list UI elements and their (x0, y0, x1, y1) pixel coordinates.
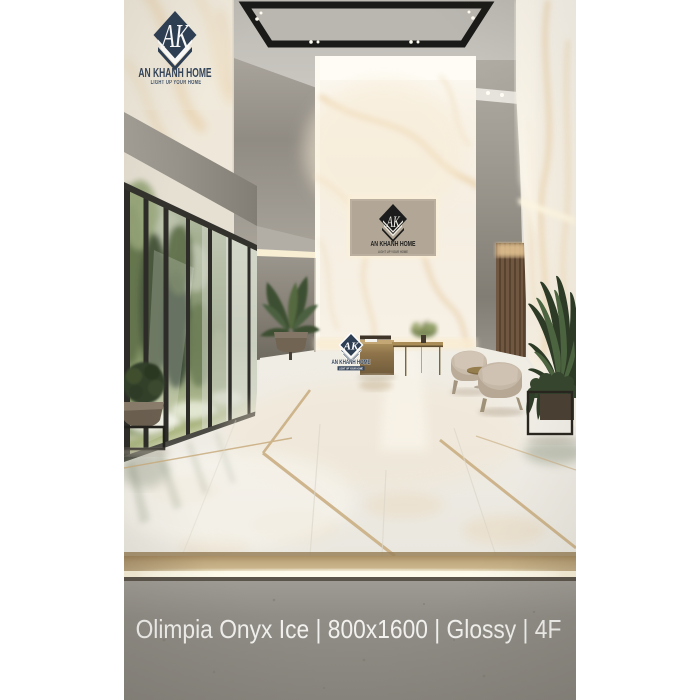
svg-text:LIGHT UP YOUR HOME: LIGHT UP YOUR HOME (378, 250, 409, 254)
svg-text:LIGHT UP YOUR HOME: LIGHT UP YOUR HOME (339, 367, 363, 371)
svg-text:AK: AK (386, 214, 400, 231)
svg-text:AK: AK (161, 18, 191, 55)
svg-text:AN KHANH HOME: AN KHANH HOME (332, 359, 371, 366)
svg-text:AN KHANH HOME: AN KHANH HOME (371, 239, 416, 248)
svg-text:AK: AK (343, 341, 359, 353)
